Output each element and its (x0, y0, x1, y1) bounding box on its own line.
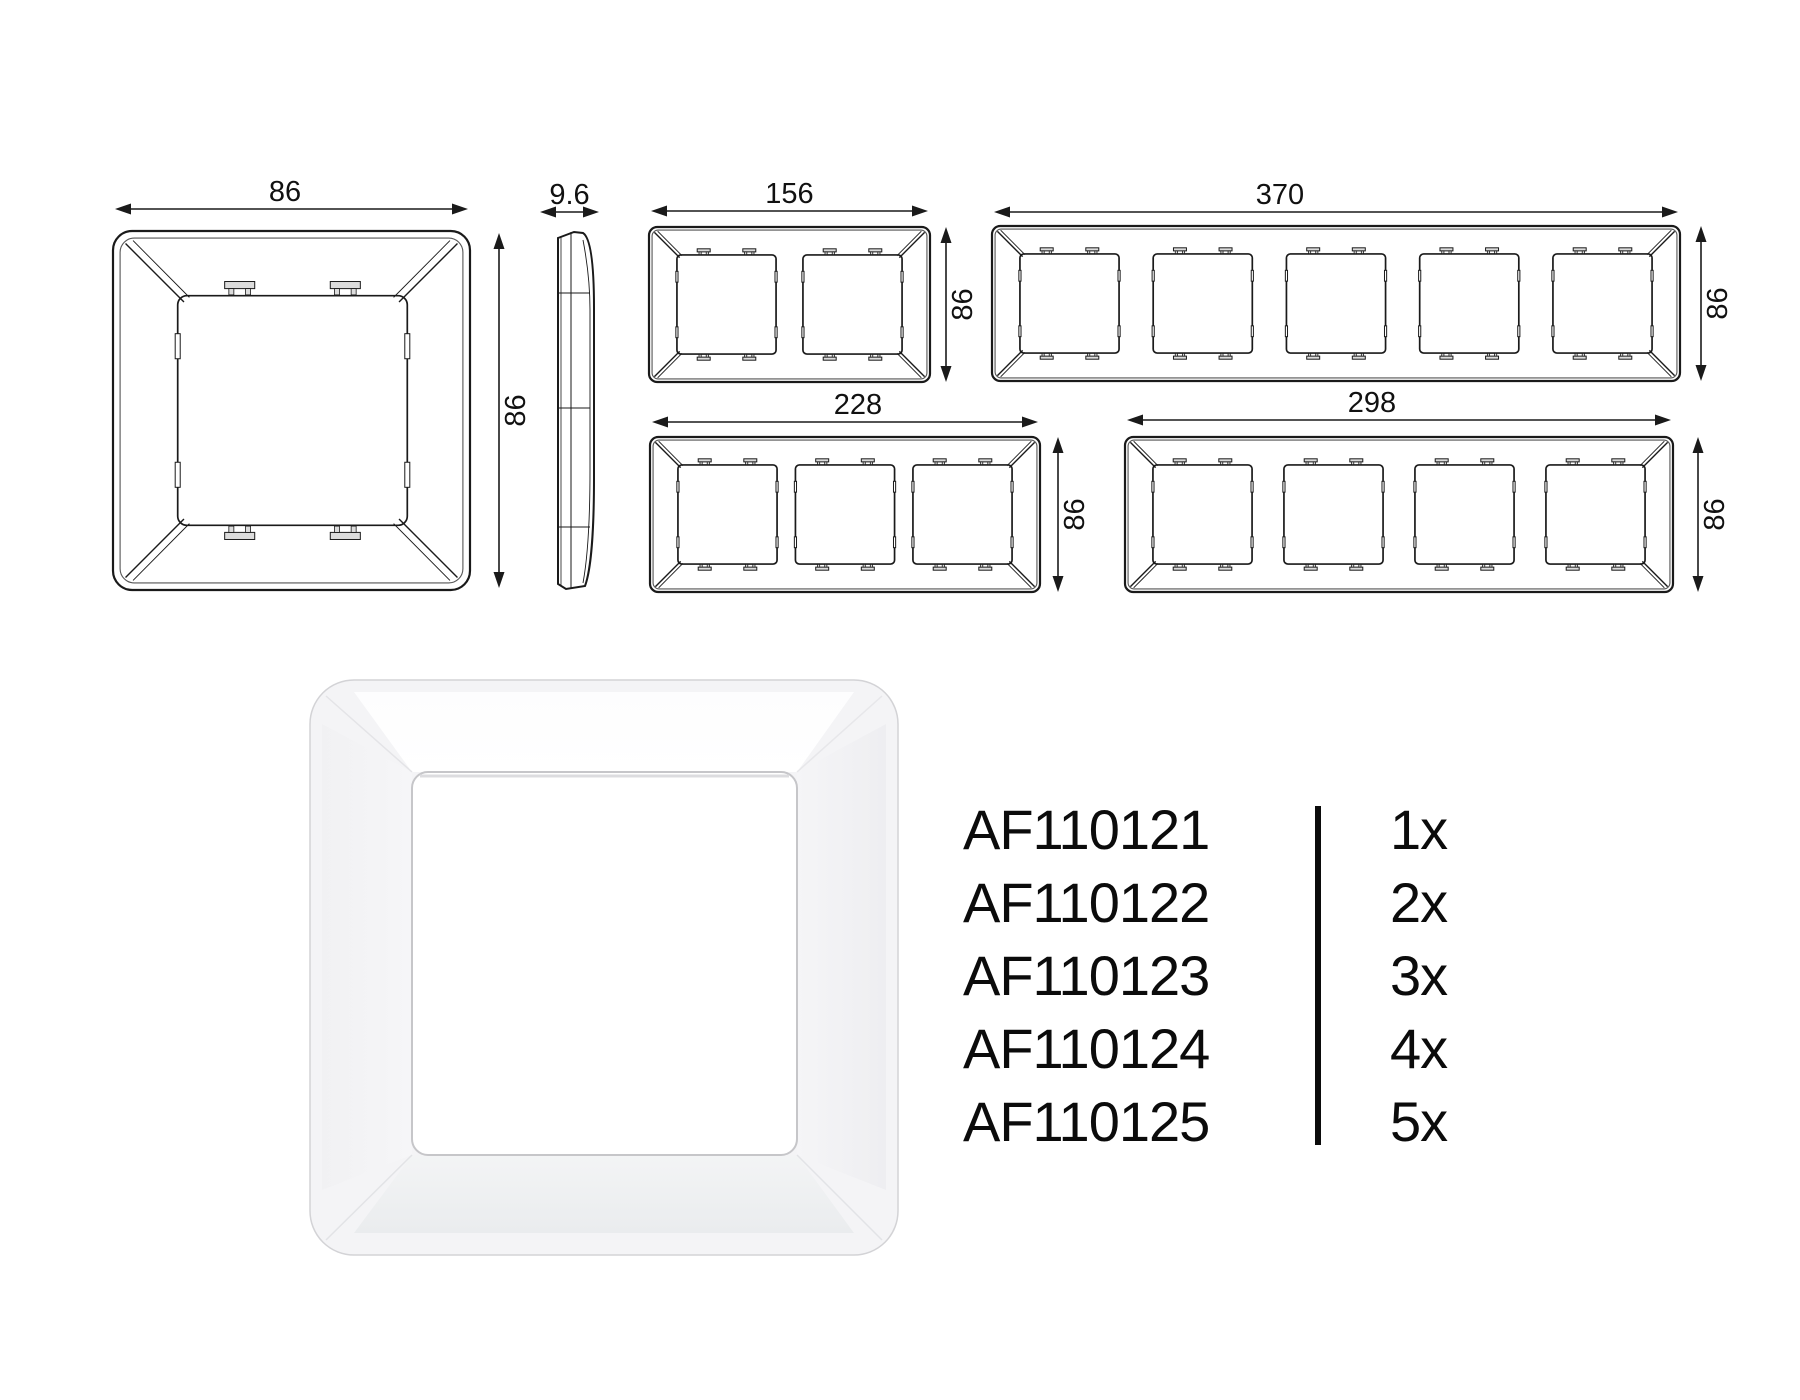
dimension-label: 298 (1348, 387, 1396, 419)
dimension-vertical: 86 (941, 227, 980, 382)
dimension-horizontal: 298 (1127, 387, 1671, 426)
render-opening (412, 772, 797, 1155)
dimension-horizontal: 156 (651, 178, 928, 217)
dimension-vertical: 86 (1693, 437, 1732, 592)
dimension-label: 86 (500, 394, 532, 426)
frame-render-body (310, 680, 898, 1255)
dimension-label: 86 (1702, 287, 1734, 319)
render-bevel-top (354, 692, 854, 772)
dimension-label: 9.6 (549, 179, 589, 211)
product-quantity: 2x (1390, 866, 1447, 939)
product-row: AF1101222x (963, 866, 1563, 939)
module-opening (178, 296, 408, 526)
dimension-vertical: 86 (1053, 437, 1092, 592)
module-opening (1284, 465, 1383, 564)
dimension-horizontal: 370 (994, 179, 1678, 218)
render-bevel-right (797, 724, 886, 1190)
product-row: AF1101211x (963, 793, 1563, 866)
module-opening (1286, 254, 1385, 353)
module-opening (803, 255, 902, 354)
product-table: AF1101211xAF1101222xAF1101233xAF1101244x… (963, 793, 1563, 1158)
drawing-single_frame_back: 8686 (113, 176, 532, 590)
drawing-frame_4gang: 29886 (1125, 387, 1731, 592)
product-code: AF110123 (963, 939, 1209, 1012)
dimension-label: 86 (1699, 498, 1731, 530)
product-row: AF1101233x (963, 939, 1563, 1012)
render-bevel-bottom (354, 1155, 854, 1233)
render-bevel-left (322, 724, 412, 1190)
module-opening (1020, 254, 1119, 353)
product-quantity: 1x (1390, 793, 1447, 866)
product-code: AF110121 (963, 793, 1209, 866)
dimension-label: 86 (1059, 498, 1091, 530)
product-quantity: 3x (1390, 939, 1447, 1012)
dimension-label: 228 (834, 389, 882, 421)
drawing-frame_2gang: 15686 (649, 178, 979, 382)
drawing-frame_5gang: 37086 (992, 179, 1734, 381)
dimension-horizontal: 86 (115, 176, 468, 215)
module-opening (1415, 465, 1514, 564)
dimension-horizontal: 228 (652, 389, 1038, 428)
product-code: AF110124 (963, 1012, 1209, 1085)
dimension-vertical: 86 (1696, 226, 1735, 381)
dimension-horizontal: 9.6 (540, 179, 599, 218)
module-opening (1153, 254, 1252, 353)
dimension-vertical: 86 (494, 233, 533, 588)
drawing-frame_3gang: 22886 (650, 389, 1091, 592)
module-opening (795, 465, 894, 564)
dimension-label: 86 (269, 176, 301, 208)
dimension-label: 370 (1256, 179, 1304, 211)
module-opening (1546, 465, 1645, 564)
product-code: AF110122 (963, 866, 1209, 939)
table-divider (1315, 806, 1321, 1145)
product-code: AF110125 (963, 1085, 1209, 1158)
module-opening (1153, 465, 1252, 564)
drawing-side_profile: 9.6 (540, 179, 599, 589)
product-quantity: 5x (1390, 1085, 1447, 1158)
module-opening (1553, 254, 1652, 353)
module-opening (678, 465, 777, 564)
module-opening (677, 255, 776, 354)
product-row: AF1101255x (963, 1085, 1563, 1158)
catalog-page: 86869.615686370862288629886 (0, 0, 1800, 1400)
module-opening (913, 465, 1012, 564)
product-quantity: 4x (1390, 1012, 1447, 1085)
product-row: AF1101244x (963, 1012, 1563, 1085)
dimension-label: 86 (947, 288, 979, 320)
dimension-label: 156 (765, 178, 813, 210)
frame-render-3d (300, 670, 910, 1270)
module-opening (1420, 254, 1519, 353)
